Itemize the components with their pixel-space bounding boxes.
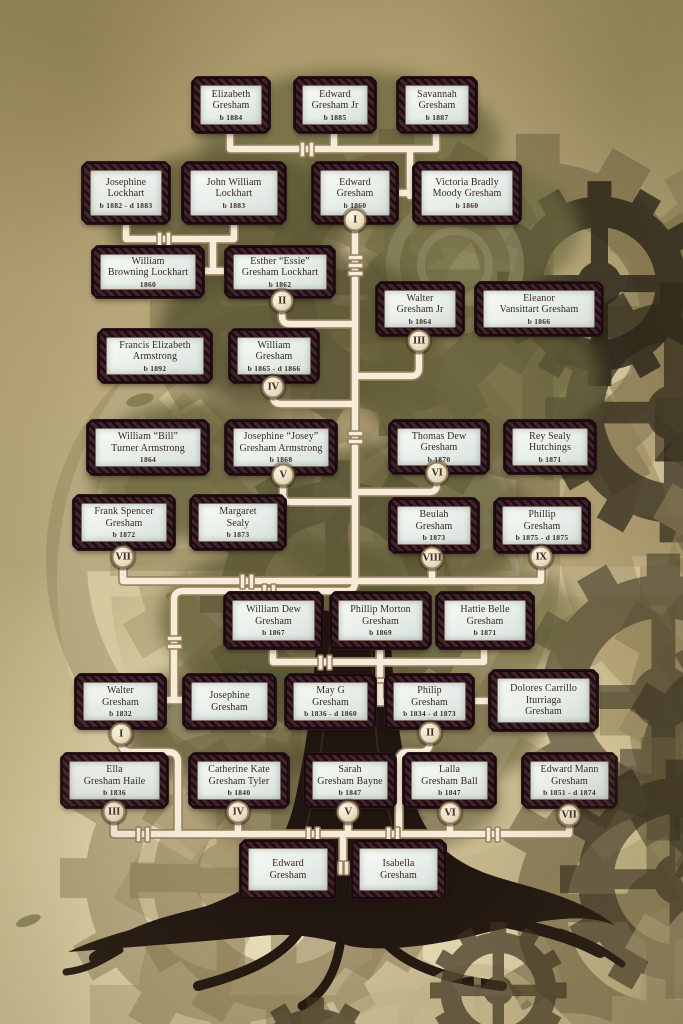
person-name: Catherine KateGresham Tyler: [208, 764, 270, 787]
child-order-badge-upper-1: I: [344, 209, 367, 232]
person-name: PhilipGresham: [411, 685, 448, 708]
person-box-savannah-gresham[interactable]: SavannahGresham b 1887: [398, 78, 476, 132]
person-box-josephine-lockhart[interactable]: JosephineLockhart b 1882 - d 1883: [83, 163, 169, 223]
child-order-badge-lower-7: VII: [558, 804, 581, 827]
person-plaque: PhillipGresham b 1875 - d 1875: [502, 506, 582, 545]
person-box-walter-gresham-jr[interactable]: WalterGresham Jr b 1864: [377, 283, 463, 335]
person-name: Edward MannGresham: [540, 764, 598, 787]
person-plaque: WilliamGresham b 1865 - d 1866: [237, 337, 311, 375]
person-plaque: Francis ElizabethArmstrong b 1892: [106, 337, 204, 375]
person-dates: b 1864: [409, 317, 432, 326]
person-plaque: EleanorVansittart Gresham b 1866: [483, 290, 595, 328]
person-dates: b 1875 - d 1875: [516, 533, 569, 542]
roman-numeral: VII: [561, 810, 576, 821]
person-name: Victoria BradlyMoody Gresham: [433, 177, 502, 200]
person-dates: b 1869: [369, 628, 392, 637]
child-order-badge-lower-4: IV: [227, 801, 250, 824]
roman-numeral: II: [426, 728, 434, 739]
person-plaque: John WilliamLockhart b 1883: [190, 170, 278, 216]
person-name: Phillip MortonGresham: [350, 604, 411, 627]
roman-numeral: IV: [267, 382, 278, 393]
person-plaque: WilliamBrowning Lockhart 1860: [100, 254, 196, 290]
person-box-isabella-gresham[interactable]: IsabellaGresham: [352, 841, 445, 898]
person-box-dolores-carrillo-iturriaga-gresham[interactable]: Dolores CarrilloIturriagaGresham: [490, 671, 597, 730]
person-name: WilliamGresham: [256, 340, 293, 363]
person-plaque: Catherine KateGresham Tyler b 1840: [197, 761, 281, 800]
child-order-badge-upper-3: III: [408, 330, 431, 353]
person-name: Frank SpencerGresham: [94, 506, 153, 529]
person-dates: b 1892: [144, 364, 167, 373]
person-dates: b 1871: [474, 628, 497, 637]
person-name: May GGresham: [312, 685, 349, 708]
person-box-william-browning-lockhart[interactable]: WilliamBrowning Lockhart 1860: [93, 247, 203, 297]
person-box-may-g-gresham[interactable]: May GGresham b 1836 - d 1860: [286, 675, 375, 728]
person-dates: b 1871: [539, 455, 562, 464]
person-plaque: LallaGresham Ball b 1847: [411, 761, 488, 800]
person-dates: b 1882 - d 1883: [100, 201, 153, 210]
child-order-badge-upper-7: VII: [112, 546, 135, 569]
person-name: EdwardGresham: [270, 858, 307, 881]
person-box-eleanor-vansittart-gresham[interactable]: EleanorVansittart Gresham b 1866: [476, 283, 602, 335]
person-plaque: Frank SpencerGresham b 1872: [81, 503, 167, 542]
person-name: WalterGresham: [102, 685, 139, 708]
person-box-josephine-gresham[interactable]: JosephineGresham: [184, 675, 275, 728]
roman-numeral: IV: [232, 807, 243, 818]
person-dates: b 1867: [262, 628, 285, 637]
person-name: William DewGresham: [246, 604, 301, 627]
person-plaque: Thomas DewGresham b 1870: [397, 428, 481, 466]
person-box-edward-gresham-jr[interactable]: EdwardGresham Jr b 1885: [295, 78, 375, 132]
person-plaque: WalterGresham Jr b 1864: [384, 290, 456, 328]
person-name: PhillipGresham: [524, 509, 561, 532]
person-name: Hattie BelleGresham: [460, 604, 509, 627]
person-plaque: Edward MannGresham b 1851 - d 1874: [530, 761, 609, 800]
person-dates: b 1832: [109, 709, 132, 718]
person-plaque: MargaretSealy b 1873: [198, 503, 278, 542]
family-tree-poster: ElizabethGresham b 1884 EdwardGresham Jr…: [0, 0, 683, 1024]
person-plaque: Dolores CarrilloIturriagaGresham: [497, 678, 590, 723]
person-plaque: EdwardGresham Jr b 1885: [302, 85, 368, 125]
person-plaque: SarahGresham Bayne b 1847: [312, 761, 388, 800]
person-name: MargaretSealy: [219, 506, 256, 529]
person-dates: b 1847: [438, 788, 461, 797]
person-plaque: Rey SealyHutchings b 1871: [512, 428, 588, 466]
person-dates: b 1834 - d 1873: [403, 709, 456, 718]
child-order-badge-upper-6: VI: [426, 462, 449, 485]
child-order-badge-upper-9: IX: [530, 546, 553, 569]
person-box-victoria-bradly-moody-gresham[interactable]: Victoria BradlyMoody Gresham b 1860: [414, 163, 520, 223]
roman-numeral: VII: [115, 552, 130, 563]
person-box-william-dew-gresham[interactable]: William DewGresham b 1867: [225, 593, 322, 648]
person-plaque: IsabellaGresham: [359, 848, 438, 891]
child-order-badge-lower-3: III: [103, 801, 126, 824]
person-name: IsabellaGresham: [380, 858, 417, 881]
person-dates: 1864: [140, 455, 156, 464]
child-order-badge-lower-1: I: [110, 723, 133, 746]
person-dates: b 1885: [324, 113, 347, 122]
person-box-ella-gresham-haile[interactable]: EllaGresham Haile b 1836: [62, 754, 167, 807]
child-order-badge-upper-5: V: [272, 464, 295, 487]
child-order-badge-lower-6: VI: [439, 802, 462, 825]
roman-numeral: II: [278, 296, 286, 307]
person-dates: b 1862: [269, 280, 292, 289]
person-plaque: Hattie BelleGresham b 1871: [444, 600, 526, 641]
person-name: BeulahGresham: [416, 509, 453, 532]
person-name: John WilliamLockhart: [207, 177, 262, 200]
person-plaque: William DewGresham b 1867: [232, 600, 315, 641]
roman-numeral: III: [108, 807, 120, 818]
person-dates: b 1873: [227, 530, 250, 539]
child-order-badge-upper-8: VIII: [421, 547, 444, 570]
person-name: Rey SealyHutchings: [529, 431, 571, 454]
person-box-rey-sealy-hutchings[interactable]: Rey SealyHutchings b 1871: [505, 421, 595, 473]
roman-numeral: VI: [431, 468, 442, 479]
person-box-william-gresham-1865[interactable]: WilliamGresham b 1865 - d 1866: [230, 330, 318, 382]
person-plaque: EllaGresham Haile b 1836: [69, 761, 160, 800]
roman-numeral: VI: [444, 808, 455, 819]
roman-numeral: I: [119, 729, 123, 740]
person-plaque: ElizabethGresham b 1884: [200, 85, 262, 125]
person-plaque: WalterGresham b 1832: [83, 682, 158, 721]
person-dates: b 1860: [456, 201, 479, 210]
person-plaque: EdwardGresham: [248, 848, 328, 891]
person-name: WilliamBrowning Lockhart: [108, 256, 188, 279]
person-box-hattie-belle-gresham[interactable]: Hattie BelleGresham b 1871: [437, 593, 533, 648]
person-name: WalterGresham Jr: [397, 293, 444, 316]
child-order-badge-lower-5: V: [337, 801, 360, 824]
person-dates: b 1840: [228, 788, 251, 797]
person-dates: 1860: [140, 280, 156, 289]
person-name: Thomas DewGresham: [412, 431, 467, 454]
person-dates: b 1873: [423, 533, 446, 542]
person-name: LallaGresham Ball: [421, 764, 477, 787]
person-plaque: Victoria BradlyMoody Gresham b 1860: [421, 170, 513, 216]
roman-numeral: V: [280, 470, 287, 481]
person-plaque: SavannahGresham b 1887: [405, 85, 469, 125]
person-box-sarah-gresham-bayne[interactable]: SarahGresham Bayne b 1847: [305, 754, 395, 807]
person-box-edward-mann-gresham[interactable]: Edward MannGresham b 1851 - d 1874: [523, 754, 616, 807]
person-plaque: Phillip MortonGresham b 1869: [338, 600, 423, 641]
person-box-john-william-lockhart[interactable]: John WilliamLockhart b 1883: [183, 163, 285, 223]
person-plaque: May GGresham b 1836 - d 1860: [293, 682, 368, 721]
person-box-francis-elizabeth-armstrong[interactable]: Francis ElizabethArmstrong b 1892: [99, 330, 211, 382]
person-name: EdwardGresham: [337, 177, 374, 200]
person-box-phillip-morton-gresham[interactable]: Phillip MortonGresham b 1869: [331, 593, 430, 648]
person-name: ElizabethGresham: [212, 89, 251, 112]
person-name: Josephine “Josey”Gresham Armstrong: [239, 431, 322, 454]
child-order-badge-upper-2: II: [271, 290, 294, 313]
person-plaque: BeulahGresham b 1873: [397, 506, 471, 545]
roman-numeral: I: [353, 215, 357, 226]
person-plaque: Esther “Essie”Gresham Lockhart b 1862: [233, 254, 327, 290]
person-box-elizabeth-gresham[interactable]: ElizabethGresham b 1884: [193, 78, 269, 132]
person-box-beulah-gresham[interactable]: BeulahGresham b 1873: [390, 499, 478, 552]
person-dates: b 1836 - d 1860: [304, 709, 357, 718]
person-box-philip-gresham-1834[interactable]: PhilipGresham b 1834 - d 1873: [386, 675, 473, 728]
person-name: Dolores CarrilloIturriagaGresham: [510, 683, 577, 718]
person-name: EleanorVansittart Gresham: [500, 293, 579, 316]
person-name: JosephineGresham: [209, 690, 249, 713]
person-name: Esther “Essie”Gresham Lockhart: [242, 256, 318, 279]
person-dates: b 1866: [528, 317, 551, 326]
person-plaque: PhilipGresham b 1834 - d 1873: [393, 682, 466, 721]
child-order-badge-upper-4: IV: [262, 376, 285, 399]
person-dates: b 1872: [113, 530, 136, 539]
person-name: JosephineLockhart: [106, 177, 146, 200]
person-box-phillip-gresham-1875[interactable]: PhillipGresham b 1875 - d 1875: [495, 499, 589, 552]
child-order-badge-lower-2: II: [419, 722, 442, 745]
roman-numeral: III: [413, 336, 425, 347]
person-name: Francis ElizabethArmstrong: [119, 340, 190, 363]
person-box-edward-gresham[interactable]: EdwardGresham: [241, 841, 335, 898]
person-dates: b 1887: [426, 113, 449, 122]
person-plaque: JosephineLockhart b 1882 - d 1883: [90, 170, 162, 216]
person-box-margaret-sealy[interactable]: MargaretSealy b 1873: [191, 496, 285, 549]
person-plaque: Josephine “Josey”Gresham Armstrong b 186…: [233, 428, 329, 467]
person-plaque: JosephineGresham: [191, 682, 268, 721]
person-dates: b 1865 - d 1866: [248, 364, 301, 373]
roman-numeral: VIII: [422, 553, 441, 564]
roman-numeral: V: [345, 807, 352, 818]
person-box-walter-gresham-1832[interactable]: WalterGresham b 1832: [76, 675, 165, 728]
person-dates: b 1884: [220, 113, 243, 122]
person-name: SarahGresham Bayne: [317, 764, 382, 787]
person-box-frank-spencer-gresham[interactable]: Frank SpencerGresham b 1872: [74, 496, 174, 549]
person-dates: b 1883: [223, 201, 246, 210]
person-name: EdwardGresham Jr: [312, 89, 359, 112]
person-dates: b 1836: [103, 788, 126, 797]
person-name: William “Bill”Turner Armstrong: [111, 431, 185, 454]
person-plaque: William “Bill”Turner Armstrong 1864: [95, 428, 201, 467]
person-dates: b 1851 - d 1874: [543, 788, 596, 797]
person-dates: b 1847: [339, 788, 362, 797]
roman-numeral: IX: [535, 552, 546, 563]
person-box-catherine-kate-gresham-tyler[interactable]: Catherine KateGresham Tyler b 1840: [190, 754, 288, 807]
person-name: SavannahGresham: [417, 89, 457, 112]
person-box-william-bill-turner-armstrong[interactable]: William “Bill”Turner Armstrong 1864: [88, 421, 208, 474]
person-name: EllaGresham Haile: [84, 764, 146, 787]
person-box-lalla-gresham-ball[interactable]: LallaGresham Ball b 1847: [404, 754, 495, 807]
